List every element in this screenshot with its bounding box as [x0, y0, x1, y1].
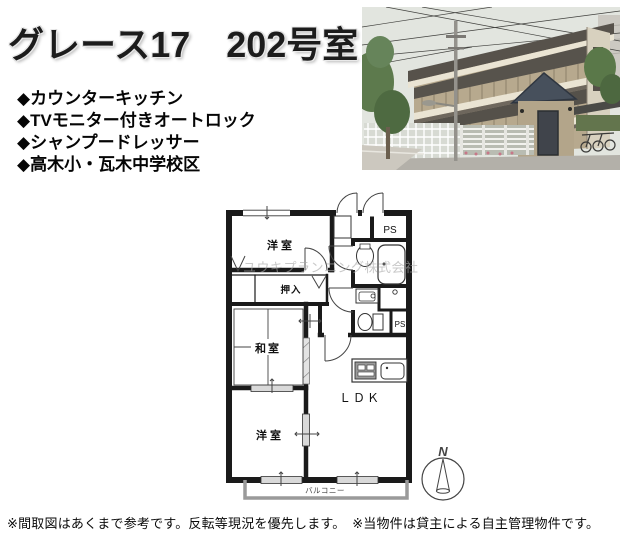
- ldk-door-arc: [325, 335, 351, 361]
- vent: [393, 290, 397, 294]
- room-label-closet: 押入: [280, 284, 301, 296]
- toilet-tank: [373, 314, 383, 330]
- room-label-bedroom-bottom: 洋室: [256, 428, 284, 442]
- stove: [355, 362, 376, 379]
- feature-item: ◆シャンプードレッサー: [17, 132, 256, 154]
- flyer-page: { "header": { "title": "グレース17 202号室" },…: [0, 0, 625, 539]
- north-compass: N: [422, 444, 464, 500]
- shoe-cabinet: [334, 216, 351, 238]
- feature-item: ◆カウンターキッチン: [17, 88, 256, 110]
- feature-item: ◆高木小・瓦木中学校区: [17, 154, 256, 176]
- sink: [381, 363, 404, 379]
- sliding-track: [303, 338, 310, 384]
- building-photo-art: [362, 7, 620, 170]
- room-label-japanese-room: 和室: [255, 341, 281, 355]
- hall-folding-door: [312, 276, 326, 288]
- room-label-ps-top: PS: [383, 225, 397, 236]
- feature-item: ◆TVモニター付きオートロック: [17, 110, 256, 132]
- washroom-door-arc: [329, 288, 353, 312]
- floorplan: N 洋室 PS 押入 和室 ＬＤＫ 洋室 PS バルコニー ユウキプランニング株…: [215, 188, 480, 510]
- floorplan-drawing: N 洋室 PS 押入 和室 ＬＤＫ 洋室 PS バルコニー ユウキプランニング株…: [215, 188, 480, 510]
- watermark-text: ユウキプランニング株式会社: [243, 260, 419, 275]
- feature-list: ◆カウンターキッチン ◆TVモニター付きオートロック ◆シャンプードレッサー ◆…: [17, 88, 256, 176]
- compass-n-label: N: [438, 444, 448, 459]
- room-label-balcony: バルコニー: [305, 486, 345, 495]
- room-label-ps-side: PS: [395, 320, 406, 329]
- page-title: グレース17 202号室: [8, 16, 368, 68]
- room-label-bedroom-top: 洋室: [267, 238, 295, 252]
- room-label-ldk: ＬＤＫ: [339, 391, 381, 405]
- footer-note: ※間取図はあくまで参考です。反転等現況を優先します。 ※当物件は貸主による自主管…: [7, 513, 622, 532]
- entrance-door: [538, 111, 558, 155]
- building-photo: [362, 7, 620, 170]
- toilet-bowl: [358, 314, 372, 331]
